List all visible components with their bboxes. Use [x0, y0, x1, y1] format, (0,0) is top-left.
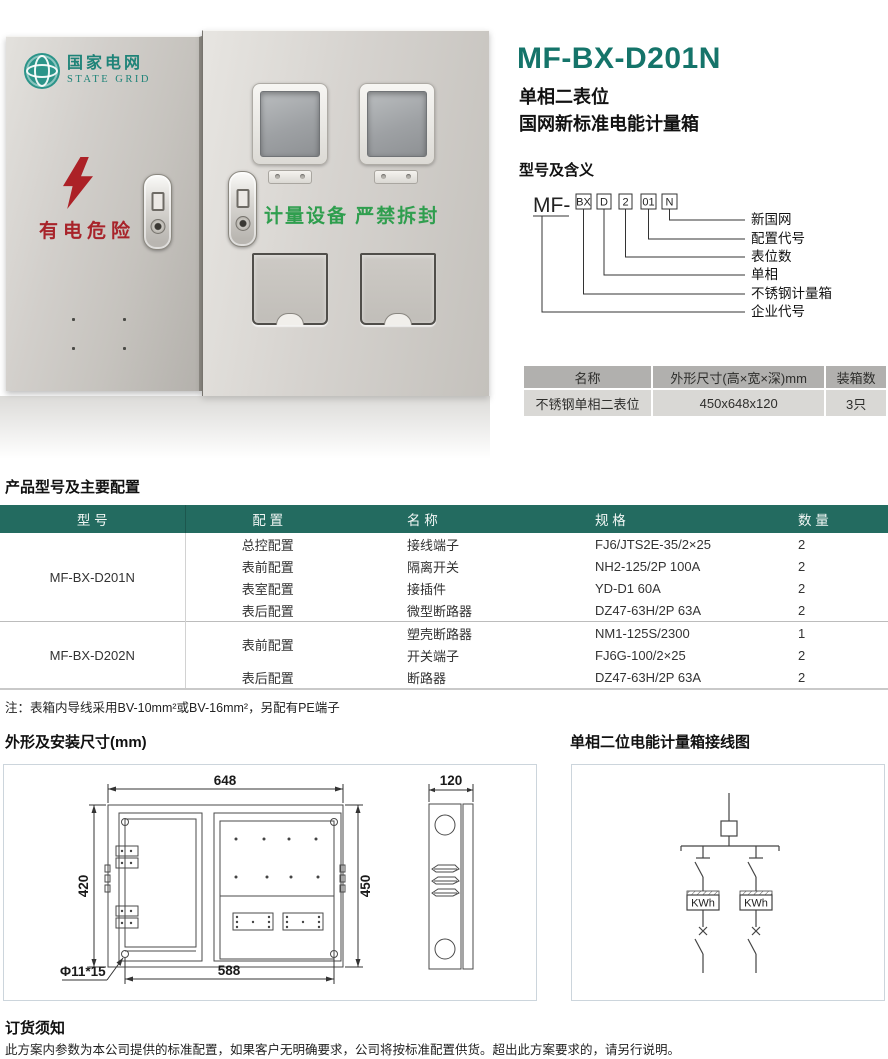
config-cell: 表后配置	[185, 666, 350, 689]
dimension-drawing: 648 420 450 588 Φ11*15 120	[4, 765, 536, 1000]
access-flap	[252, 253, 328, 325]
dim-depth: 120	[440, 773, 463, 788]
wiring-diagram-panel: KWh KWh	[571, 764, 885, 1001]
code-d: D	[600, 197, 608, 209]
spec-cell: FJ6/JTS2E-35/2×25	[520, 533, 740, 555]
spec-cell: FJ6G-100/2×25	[520, 644, 740, 666]
meaning-label: 配置代号	[751, 231, 805, 246]
spec-table: 名称 外形尺寸(高×宽×深)mm 装箱数 不锈钢单相二表位 450x648x12…	[522, 364, 888, 418]
vent-hole	[123, 318, 126, 321]
dim-bottom-width: 588	[218, 963, 241, 978]
window-latch	[374, 170, 418, 184]
name-cell: 断路器	[350, 666, 520, 689]
section-heading-model-meaning: 型号及含义	[519, 159, 594, 180]
code-2: 2	[622, 197, 628, 209]
page-title: MF-BX-D201N	[517, 42, 721, 76]
subtitle-line1: 单相二表位	[519, 84, 699, 111]
spec-size-cell: 450x648x120	[653, 390, 824, 416]
meter-window	[359, 83, 435, 165]
meter-box-inner-door: 计量设备 严禁拆封	[202, 30, 489, 396]
access-flap	[360, 253, 436, 325]
qty-cell: 2	[740, 555, 888, 577]
spec-name-cell: 不锈钢单相二表位	[524, 390, 651, 416]
state-grid-brand: 国家电网 STATE GRID	[24, 53, 151, 89]
code-bx: BX	[576, 197, 591, 209]
spec-cell: DZ47-63H/2P 63A	[520, 666, 740, 689]
config-cell: 表前配置	[185, 622, 350, 667]
qty-cell: 2	[740, 666, 888, 689]
spec-cell: DZ47-63H/2P 63A	[520, 599, 740, 622]
qty-cell: 2	[740, 599, 888, 622]
vent-hole	[72, 318, 75, 321]
meaning-label: 不锈钢计量箱	[751, 286, 832, 301]
meter-label: KWh	[744, 898, 768, 910]
wiring-diagram: KWh KWh	[572, 765, 884, 1000]
dim-width: 648	[214, 773, 237, 788]
dim-height-right: 450	[358, 875, 373, 898]
spec-col-pack: 装箱数	[826, 366, 886, 388]
config-header-row: 型 号 配 置 名 称 规 格 数 量	[0, 505, 888, 533]
photo-reflection	[0, 396, 490, 470]
state-grid-logo-icon	[24, 53, 60, 89]
window-latch	[268, 170, 312, 184]
spec-pack-cell: 3只	[826, 390, 886, 416]
config-cell: 表室配置	[185, 577, 350, 599]
config-table: 型 号 配 置 名 称 规 格 数 量 MF-BX-D201N 总控配置 接线端…	[0, 505, 888, 690]
section-heading-config: 产品型号及主要配置	[5, 476, 140, 497]
page-subtitle: 单相二表位 国网新标准电能计量箱	[519, 84, 699, 138]
brand-name-cn: 国家电网	[67, 56, 151, 72]
spec-col-size: 外形尺寸(高×宽×深)mm	[653, 366, 824, 388]
meaning-label: 单相	[751, 267, 778, 282]
qty-cell: 2	[740, 533, 888, 555]
brand-name-en: STATE GRID	[67, 75, 151, 86]
col-spec: 规 格	[520, 505, 740, 533]
name-cell: 隔离开关	[350, 555, 520, 577]
section-heading-dimensions: 外形及安装尺寸(mm)	[5, 731, 147, 752]
lightning-bolt-icon	[63, 157, 93, 209]
section-heading-order: 订货须知	[5, 1017, 65, 1038]
meaning-label: 新国网	[751, 212, 792, 227]
model-cell: MF-BX-D202N	[0, 622, 185, 690]
door-lock-right	[228, 171, 257, 247]
section-heading-wiring: 单相二位电能计量箱接线图	[570, 731, 750, 752]
order-note-text: 此方案内参数为本公司提供的标准配置，如果客户无明确要求，公司将按标准配置供货。超…	[5, 1039, 680, 1058]
spec-cell: NM1-125S/2300	[520, 622, 740, 645]
name-cell: 接线端子	[350, 533, 520, 555]
meaning-label: 企业代号	[751, 303, 805, 319]
dimension-drawing-panel: 648 420 450 588 Φ11*15 120	[3, 764, 537, 1001]
subtitle-line2: 国网新标准电能计量箱	[519, 111, 699, 138]
model-code-diagram: MF- BX D 2 01 N 新国网 配置代号 表位数 单相 不锈钢计量箱 企…	[517, 186, 887, 334]
seal-label: 计量设备 严禁拆封	[264, 201, 439, 228]
qty-cell: 2	[740, 644, 888, 666]
code-n: N	[666, 197, 674, 209]
meter-label: KWh	[691, 898, 715, 910]
danger-label: 有电危险	[39, 216, 135, 243]
table-row: MF-BX-D201N 总控配置 接线端子 FJ6/JTS2E-35/2×25 …	[0, 533, 888, 555]
qty-cell: 1	[740, 622, 888, 645]
table-row: MF-BX-D202N 表前配置 塑壳断路器 NM1-125S/2300 1	[0, 622, 888, 645]
qty-cell: 2	[740, 577, 888, 599]
spec-col-name: 名称	[524, 366, 651, 388]
spec-row: 不锈钢单相二表位 450x648x120 3只	[524, 390, 886, 416]
model-prefix: MF-	[533, 194, 570, 217]
model-cell: MF-BX-D201N	[0, 533, 185, 622]
dim-hole: Φ11*15	[60, 964, 106, 979]
config-cell: 总控配置	[185, 533, 350, 555]
name-cell: 接插件	[350, 577, 520, 599]
config-cell: 表前配置	[185, 555, 350, 577]
name-cell: 开关端子	[350, 644, 520, 666]
meter-box-outer-door: 国家电网 STATE GRID 有电危险	[6, 36, 202, 391]
vent-hole	[123, 347, 126, 350]
dim-height-left: 420	[76, 875, 91, 898]
name-cell: 塑壳断路器	[350, 622, 520, 645]
meter-window	[252, 83, 328, 165]
vent-hole	[72, 347, 75, 350]
col-model: 型 号	[0, 505, 185, 533]
door-lock-left	[143, 174, 172, 250]
config-cell: 表后配置	[185, 599, 350, 622]
col-qty: 数 量	[740, 505, 888, 533]
datasheet-page: 国家电网 STATE GRID 有电危险 计量设备 严禁拆封 MF-BX-D20…	[0, 0, 888, 1059]
product-photo: 国家电网 STATE GRID 有电危险 计量设备 严禁拆封	[0, 0, 498, 472]
col-name: 名 称	[350, 505, 520, 533]
code-01: 01	[642, 197, 654, 209]
spec-cell: NH2-125/2P 100A	[520, 555, 740, 577]
name-cell: 微型断路器	[350, 599, 520, 622]
meaning-label: 表位数	[751, 249, 792, 264]
col-config: 配 置	[185, 505, 350, 533]
wiring-note: 注：表箱内导线采用BV-10mm²或BV-16mm²，另配有PE端子	[5, 697, 340, 716]
spec-cell: YD-D1 60A	[520, 577, 740, 599]
